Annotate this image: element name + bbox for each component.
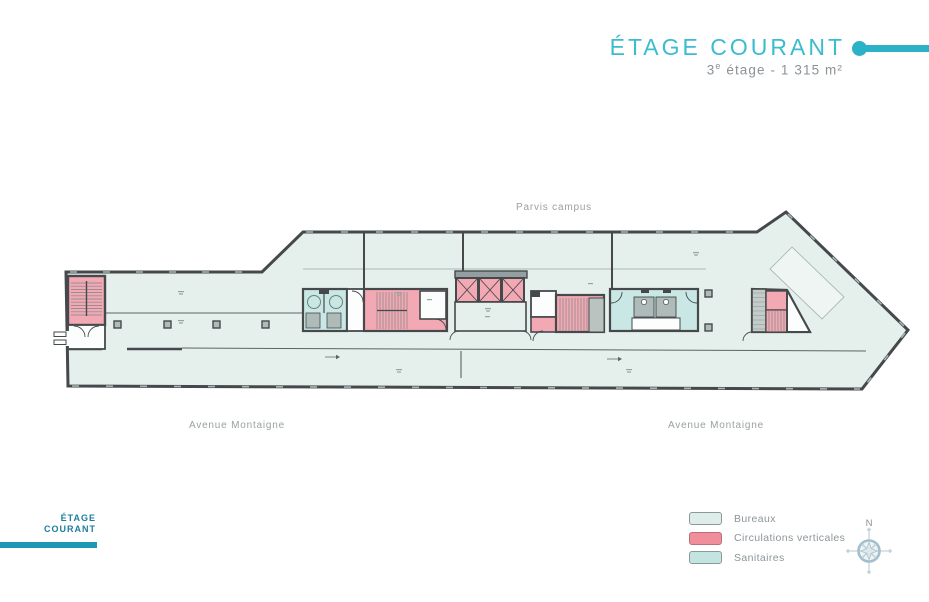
duct-shaft — [752, 289, 766, 332]
column — [164, 321, 171, 328]
legend-label-sanitaires: Sanitaires — [734, 552, 785, 564]
legend: Bureaux Circulations verticales Sanitair… — [689, 512, 845, 571]
column — [262, 321, 269, 328]
column — [705, 290, 712, 297]
page: ÉTAGE COURANT 3e étage - 1 315 m² — [0, 0, 929, 602]
legend-item-circulations: Circulations verticales — [689, 532, 845, 545]
footer-tab: ÉTAGE COURANT — [0, 513, 97, 548]
legend-item-sanitaires: Sanitaires — [689, 551, 845, 564]
footer-tab-bar — [0, 542, 97, 548]
legend-item-bureaux: Bureaux — [689, 512, 845, 525]
core-room — [420, 291, 446, 319]
entrance-vestibule — [68, 325, 105, 349]
west-sanitary-block — [303, 289, 364, 331]
compass-icon: N — [845, 511, 893, 583]
core-vestibule — [347, 289, 364, 331]
west-stairwell — [54, 276, 105, 349]
footer-tab-line2: COURANT — [0, 524, 97, 535]
wc-stall — [306, 313, 320, 328]
counter — [632, 318, 680, 330]
footer-tab-line1: ÉTAGE — [0, 513, 97, 524]
wc-stall — [327, 313, 341, 328]
legend-label-circulations: Circulations verticales — [734, 532, 845, 544]
legend-swatch-circulations — [689, 532, 722, 545]
basin-fixture — [663, 299, 668, 304]
column — [213, 321, 220, 328]
street-label-bottom-left: Avenue Montaigne — [189, 420, 285, 431]
street-label-bottom-right: Avenue Montaigne — [668, 420, 764, 431]
legend-swatch-sanitaires — [689, 551, 722, 564]
street-label-top: Parvis campus — [516, 202, 592, 213]
central-stair-core — [364, 289, 447, 331]
compass-north-label: N — [866, 518, 873, 529]
east-sanitary-block — [610, 289, 698, 331]
elevator-bank — [450, 271, 531, 340]
column — [705, 324, 712, 331]
column — [114, 321, 121, 328]
entrance-door-leaf — [54, 332, 66, 337]
legend-label-bureaux: Bureaux — [734, 513, 776, 525]
entrance-door-leaf — [54, 340, 66, 345]
basin-fixture — [641, 299, 646, 304]
legend-swatch-bureaux — [689, 512, 722, 525]
basin-fixture — [308, 296, 321, 309]
basin-fixture — [330, 296, 343, 309]
elevator-lobby — [455, 302, 526, 331]
